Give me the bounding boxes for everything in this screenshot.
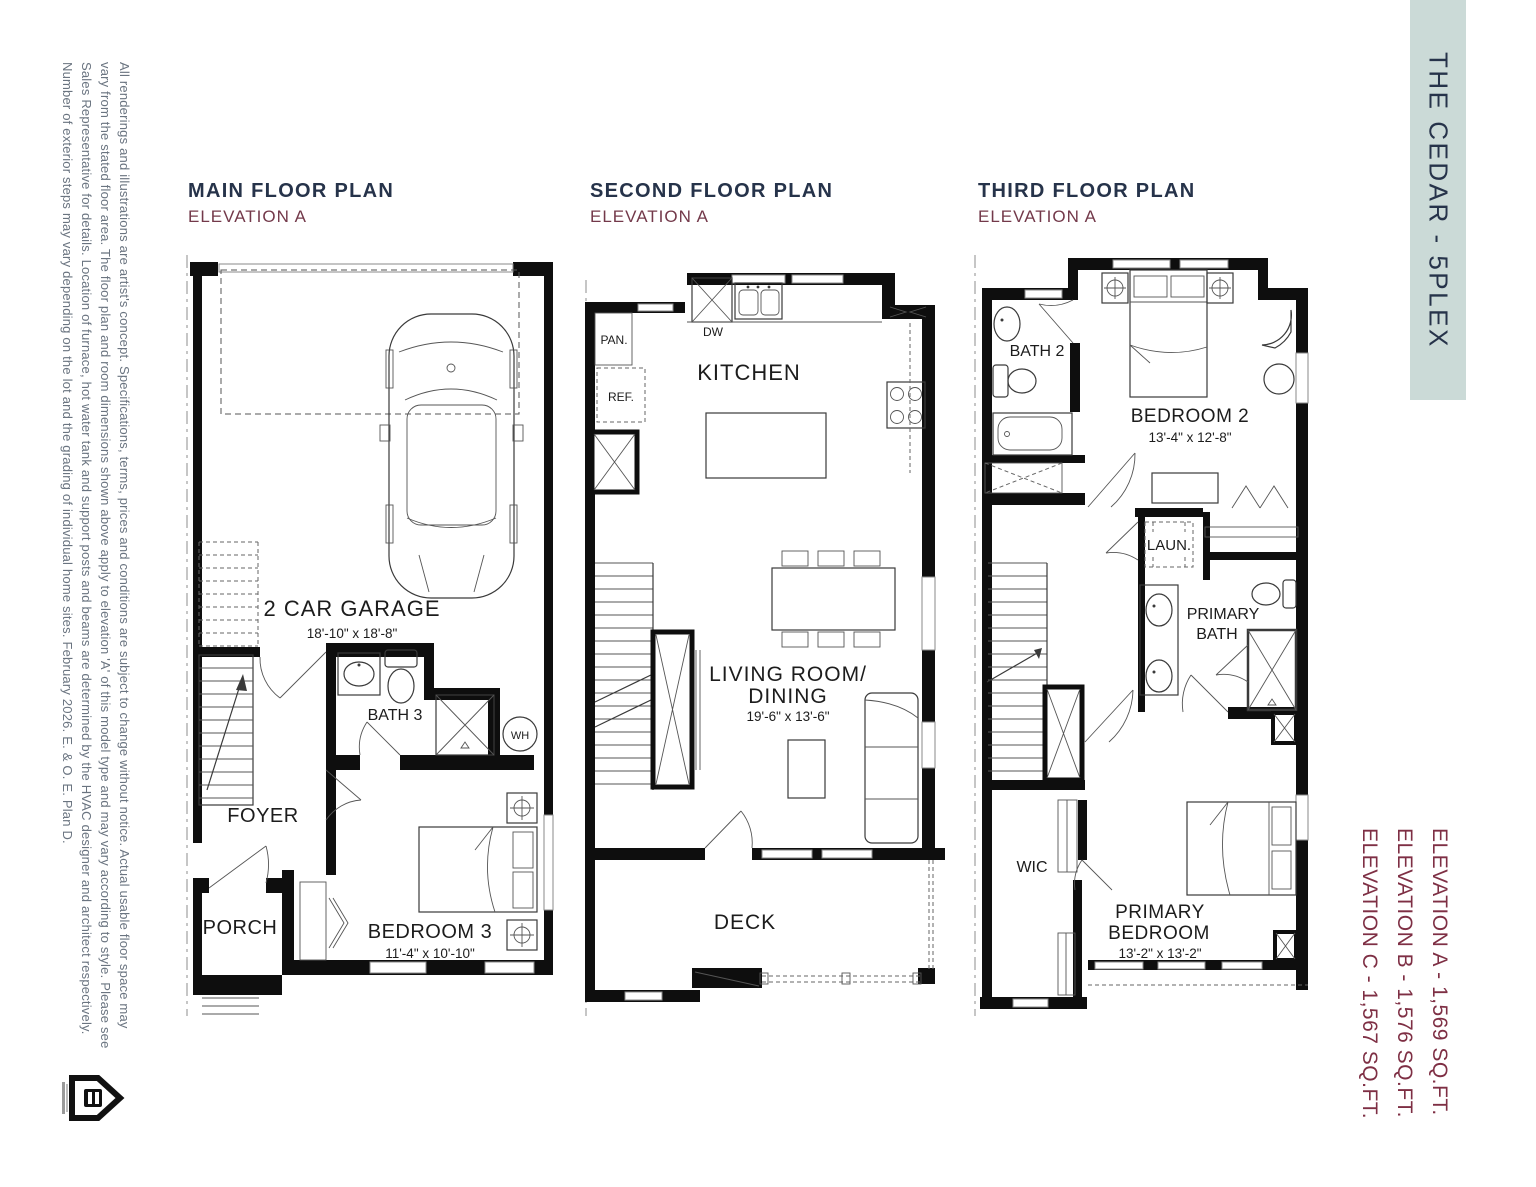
bedroom2-label: BEDROOM 2: [1131, 406, 1250, 427]
window: [1222, 962, 1262, 969]
elevation-summary: ELEVATION A - 1,569 SQ.FT. ELEVATION B -…: [1352, 828, 1457, 1138]
elevation-a-sqft: ELEVATION A - 1,569 SQ.FT.: [1422, 828, 1457, 1138]
toilet-icon: [993, 365, 1036, 397]
fridge-label: REF.: [608, 390, 634, 404]
main-floor-plan: 2 CAR GARAGE 18'-10" x 18'-8" BATH 3 WH …: [183, 250, 560, 1020]
dishwasher-label: DW: [703, 325, 724, 339]
disclaimer-text: All renderings and illustrations are art…: [58, 62, 134, 1057]
corner-chase: [1273, 713, 1296, 743]
living-room-label: LIVING ROOM/: [709, 663, 867, 686]
disclaimer-line: Number of exterior steps may vary depend…: [58, 62, 77, 1057]
third-floor-plan: BATH 2 BEDROOM 2 13'-4" x 12'-8" LAUN. P…: [973, 250, 1313, 1020]
wic-label: WIC: [1016, 859, 1047, 876]
window: [625, 992, 662, 1000]
stove-icon: [887, 382, 925, 428]
sink-icon: [1146, 594, 1172, 626]
garage-dims: 18'-10" x 18'-8": [307, 626, 398, 641]
car-icon: [380, 314, 523, 598]
window: [1095, 962, 1143, 969]
closet-shelf: [1205, 527, 1298, 537]
primary-bath-label-2: BATH: [1196, 626, 1237, 643]
bedroom3-label: BEDROOM 3: [368, 921, 493, 943]
dresser-icon: [1152, 473, 1218, 503]
third-floor-title: THIRD FLOOR PLAN: [978, 180, 1195, 203]
window: [922, 577, 935, 650]
door-swing: [1085, 690, 1133, 742]
second-floor-plan: PAN. REF. DW KITCHEN LIVING ROOM/ DINING…: [583, 250, 945, 1020]
pantry-label: PAN.: [600, 333, 627, 347]
kitchen-label: KITCHEN: [697, 360, 801, 385]
bedroom2-dims: 13'-4" x 12'-8": [1148, 430, 1231, 445]
builder-logo: [58, 1068, 130, 1130]
ceiling-fan-icon: [507, 793, 537, 823]
window: [1180, 260, 1228, 268]
deck-door-swing: [705, 811, 752, 848]
door-swing: [1039, 300, 1073, 343]
main-floor-title: MAIN FLOOR PLAN: [188, 180, 394, 203]
water-heater-label: WH: [511, 730, 529, 742]
garage-door: [219, 264, 513, 272]
main-floor-subtitle: ELEVATION A: [188, 207, 394, 227]
corner-chase: [1275, 932, 1296, 960]
plan-name-banner: THE CEDAR - 5PLEX: [1410, 0, 1466, 400]
toilet-icon: [385, 650, 417, 703]
window: [792, 275, 843, 283]
bath2-label: BATH 2: [1010, 343, 1065, 360]
round-table-icon: [1264, 364, 1294, 394]
stairs-icon: [987, 563, 1133, 780]
house-icon: [62, 1078, 120, 1118]
second-floor-subtitle: ELEVATION A: [590, 207, 833, 227]
ceiling-fan-icon: [1102, 273, 1128, 303]
bathtub-icon: [993, 413, 1072, 455]
window: [1296, 353, 1308, 403]
window: [922, 722, 935, 768]
stair-shaft: [653, 632, 700, 787]
primary-bed-icon: [1187, 802, 1296, 895]
third-floor-header: THIRD FLOOR PLAN ELEVATION A: [978, 180, 1195, 227]
window: [370, 962, 426, 973]
window: [544, 815, 553, 910]
garage-label: 2 CAR GARAGE: [263, 596, 440, 621]
laundry-label: LAUN.: [1147, 537, 1191, 554]
third-floor-subtitle: ELEVATION A: [978, 207, 1195, 227]
chair-icon: [1262, 310, 1291, 348]
foyer-label: FOYER: [227, 805, 298, 827]
living-room-dims: 19'-6" x 13'-6": [746, 709, 829, 724]
second-floor-header: SECOND FLOOR PLAN ELEVATION A: [590, 180, 833, 227]
chase-box: [592, 432, 637, 492]
closet-bifold-door: [300, 882, 348, 960]
primary-bath-label-1: PRIMARY: [1187, 606, 1260, 623]
window: [732, 275, 785, 283]
bed-icon: [419, 827, 537, 912]
window: [638, 304, 673, 311]
window: [1013, 999, 1048, 1007]
door-swing: [1106, 522, 1138, 560]
garage-apron-outline: [221, 270, 519, 414]
bath3-label: BATH 3: [368, 707, 423, 724]
window: [762, 850, 812, 858]
linen-closet: [985, 463, 1062, 493]
kitchen-island: [706, 413, 826, 478]
bath2-fixtures: [985, 300, 1073, 493]
ceiling-fan-icon: [507, 920, 537, 950]
window: [822, 850, 872, 858]
kitchen-sink-icon: [735, 283, 782, 319]
sink-icon: [994, 307, 1020, 341]
deck-label: DECK: [714, 911, 776, 934]
ceiling-fan-icon: [1207, 273, 1233, 303]
primary-bath-fixtures: [1140, 580, 1296, 743]
primary-bedroom-label-1: PRIMARY: [1115, 902, 1205, 923]
primary-bedroom-label-2: BEDROOM: [1108, 923, 1210, 944]
second-floor-title: SECOND FLOOR PLAN: [590, 180, 833, 203]
window: [1025, 290, 1062, 298]
bed-icon: [1130, 270, 1207, 397]
stair-shaft: [1045, 687, 1082, 780]
elevation-c-sqft: ELEVATION C - 1,567 SQ.FT.: [1352, 828, 1387, 1138]
stairs-icon: [595, 563, 700, 790]
floorplan-sheet: All renderings and illustrations are art…: [0, 0, 1536, 1187]
stairs-icon: [199, 542, 258, 805]
sink-icon: [1146, 660, 1172, 692]
shower-icon: [436, 695, 494, 755]
bedroom3-dims: 11'-4" x 10'-10": [385, 946, 475, 961]
porch-label: PORCH: [203, 917, 278, 939]
closet-doors-icon: [1232, 486, 1288, 508]
plan-name: THE CEDAR - 5PLEX: [1423, 52, 1454, 349]
window: [1113, 260, 1170, 268]
window: [485, 962, 534, 973]
elevation-b-sqft: ELEVATION B - 1,576 SQ.FT.: [1387, 828, 1422, 1138]
porch-steps: [202, 998, 259, 1014]
toilet-icon: [1252, 580, 1296, 608]
primary-bedroom-dims: 13'-2" x 13'-2": [1118, 946, 1201, 961]
door-swing: [1088, 453, 1135, 507]
bath3-fixtures: [338, 650, 537, 755]
window: [1158, 962, 1205, 969]
window: [1296, 795, 1308, 840]
coffee-table-icon: [788, 740, 825, 798]
main-floor-header: MAIN FLOOR PLAN ELEVATION A: [188, 180, 394, 227]
sofa-icon: [865, 693, 918, 843]
door-swing: [1182, 675, 1228, 712]
dining-set-icon: [772, 551, 895, 647]
disclaimer-line: vary from the stated floor area. The flo…: [96, 62, 115, 1057]
disclaimer-line: Sales Representative for details. Locati…: [77, 62, 96, 1057]
disclaimer-line: All renderings and illustrations are art…: [115, 62, 134, 1057]
bedroom2-furniture: [1088, 270, 1298, 537]
dining-label: DINING: [748, 685, 828, 708]
